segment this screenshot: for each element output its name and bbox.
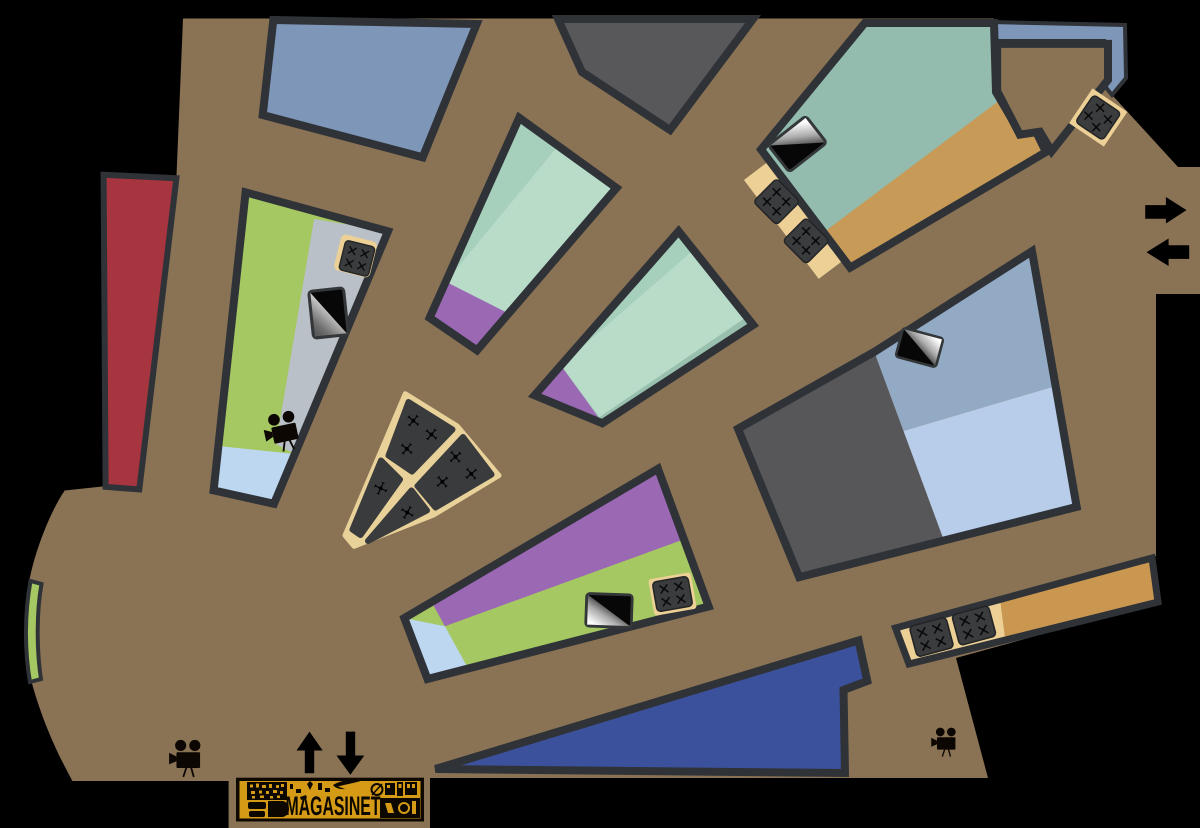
svg-text:MAGASINET: MAGASINET	[286, 791, 381, 821]
